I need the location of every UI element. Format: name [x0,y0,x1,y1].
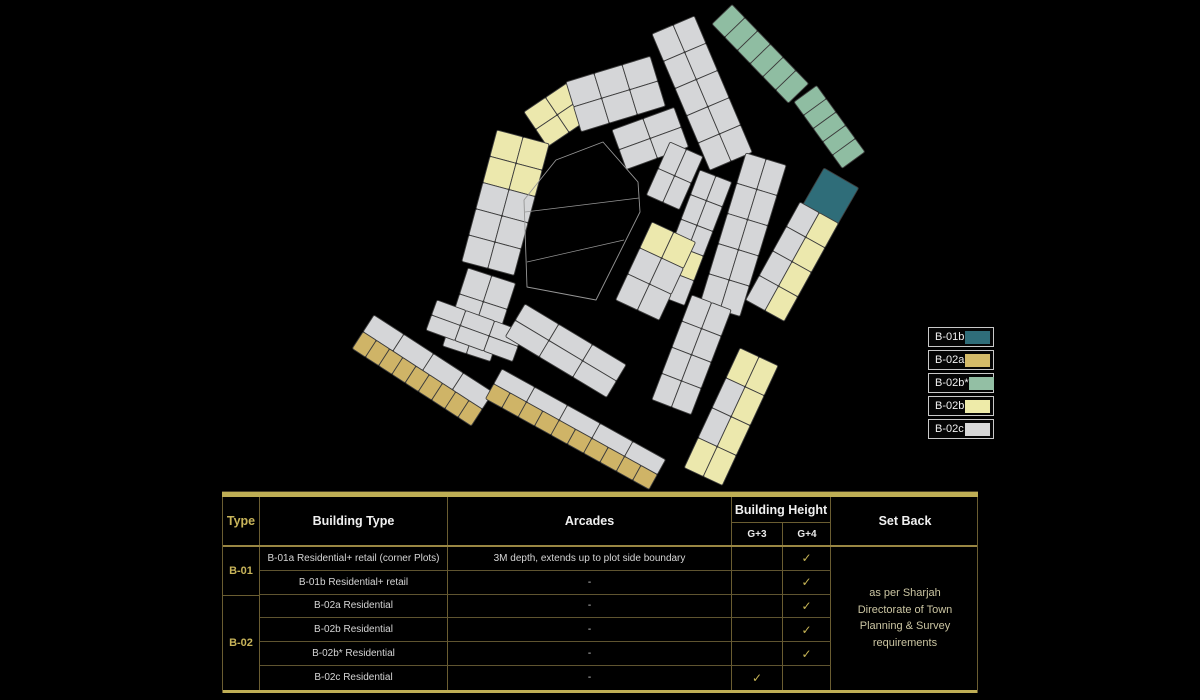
building-spec-table: Type Building Type Arcades Building Heig… [222,491,978,693]
arcades-cell: 3M depth, extends up to plot side bounda… [448,547,732,571]
plot-block [712,5,809,104]
legend-label: B-02c [935,424,964,435]
legend-color-swatch [969,377,994,390]
plot-block [486,369,666,489]
building-type-cell: B-02b Residential [260,618,448,642]
arcades-cell: - [448,571,732,595]
building-height-label: Building Height [732,497,830,522]
empty-parcel-divider-line [525,198,639,212]
legend-item-b-02b-star: B-02b* [928,373,994,393]
g4-check-cell [783,666,831,690]
column-subheader-g4: G+4 [783,523,831,545]
g4-check-cell: ✓ [783,642,831,666]
building-type-cell: B-02c Residential [260,666,448,690]
legend-color-swatch [965,354,990,367]
page-background: B-01bB-02aB-02b*B-02bB-02c Type Building… [0,0,1200,700]
legend-label: B-02b [935,401,964,412]
g4-check-cell: ✓ [783,618,831,642]
g4-check-cell: ✓ [783,547,831,571]
g3-check-cell [732,618,783,642]
legend-color-swatch [965,423,990,436]
legend-label: B-02a [935,355,964,366]
arcades-cell: - [448,595,732,619]
column-header-set-back: Set Back [831,497,979,545]
g4-check-cell: ✓ [783,595,831,619]
plot-block [462,130,549,275]
map-legend: B-01bB-02aB-02b*B-02bB-02c [928,327,994,442]
building-type-cell: B-02a Residential [260,595,448,619]
table-body: B-01B-02B-01a Residential+ retail (corne… [223,547,977,693]
legend-label: B-01b [935,332,964,343]
building-type-cell: B-01a Residential+ retail (corner Plots) [260,547,448,571]
legend-item-b-02a: B-02a [928,350,994,370]
legend-item-b-02b: B-02b [928,396,994,416]
g4-check-cell: ✓ [783,571,831,595]
column-header-type: Type [223,497,260,545]
table-header-row: Type Building Type Arcades Building Heig… [223,497,977,547]
g3-check-cell [732,595,783,619]
type-group-b-02: B-02 [223,595,260,690]
g3-check-cell [732,571,783,595]
column-subheader-g3: G+3 [732,523,783,545]
column-header-arcades: Arcades [448,497,732,545]
column-header-building-type: Building Type [260,497,448,545]
building-height-subheaders: G+3 G+4 [732,522,830,545]
type-group-b-01: B-01 [223,547,260,595]
g3-check-cell [732,547,783,571]
g3-check-cell: ✓ [732,666,783,690]
g3-check-cell [732,642,783,666]
arcades-cell: - [448,642,732,666]
column-header-building-height: Building Height G+3 G+4 [732,497,831,545]
set-back-note: as per Sharjah Directorate of Town Plann… [831,547,979,690]
legend-item-b-02c: B-02c [928,419,994,439]
legend-label: B-02b* [935,378,969,389]
legend-color-swatch [965,400,990,413]
empty-parcel-divider-line [527,240,624,262]
legend-color-swatch [965,331,990,344]
arcades-cell: - [448,666,732,690]
building-type-cell: B-02b* Residential [260,642,448,666]
building-type-cell: B-01b Residential+ retail [260,571,448,595]
plot-block [794,86,865,169]
legend-item-b-01b: B-01b [928,327,994,347]
arcades-cell: - [448,618,732,642]
